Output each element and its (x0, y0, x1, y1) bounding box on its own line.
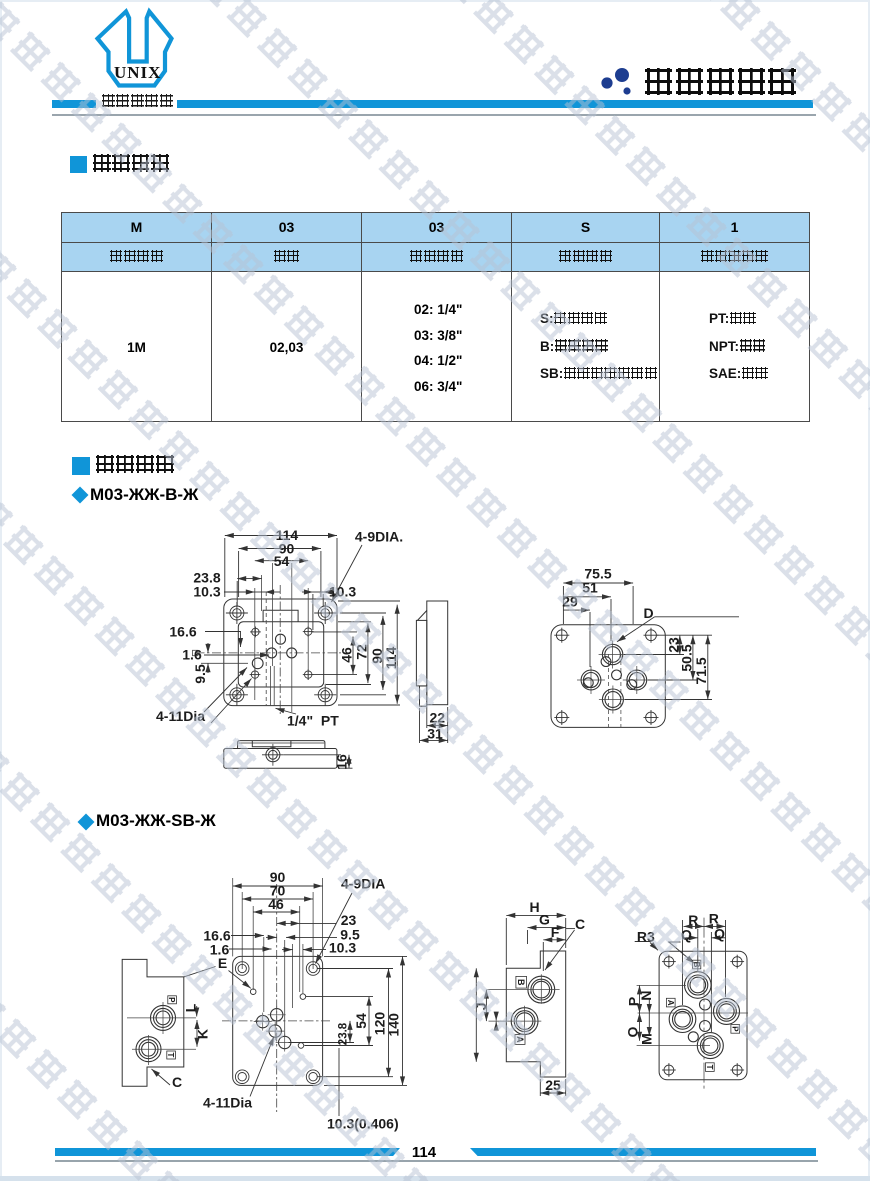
svg-text:25: 25 (545, 1077, 561, 1093)
svg-text:4-11Dia: 4-11Dia (203, 1095, 252, 1111)
svg-text:M: M (639, 1033, 655, 1045)
svg-text:A: A (666, 1000, 675, 1006)
svg-text:23.8: 23.8 (337, 1022, 349, 1045)
svg-text:16: 16 (334, 754, 350, 770)
svg-text:72: 72 (354, 644, 370, 660)
svg-text:50.5: 50.5 (679, 644, 695, 671)
svg-text:E: E (218, 955, 227, 971)
svg-text:114: 114 (383, 646, 399, 669)
svg-text:16.6: 16.6 (169, 624, 196, 640)
svg-text:10.3(0.406): 10.3(0.406) (327, 1116, 399, 1132)
svg-text:H: H (529, 899, 539, 915)
svg-text:54: 54 (274, 553, 290, 569)
svg-text:L: L (183, 1003, 199, 1012)
svg-text:J: J (473, 1003, 489, 1011)
svg-text:10.3: 10.3 (193, 584, 220, 600)
svg-text:46: 46 (268, 896, 284, 912)
svg-text:R: R (709, 911, 719, 927)
svg-text:G: G (539, 912, 550, 928)
svg-text:D: D (643, 605, 653, 621)
svg-text:A: A (515, 1036, 525, 1043)
svg-text:R3: R3 (637, 929, 655, 945)
svg-text:B: B (516, 979, 526, 986)
svg-text:9.5: 9.5 (192, 664, 208, 684)
svg-text:Q: Q (714, 926, 725, 942)
svg-text:1.6: 1.6 (182, 647, 202, 663)
svg-text:71.5: 71.5 (693, 657, 709, 684)
svg-text:P: P (731, 1026, 740, 1032)
svg-text:4-9DIA.: 4-9DIA. (355, 529, 403, 545)
svg-text:46: 46 (338, 647, 354, 663)
svg-text:K: K (195, 1029, 211, 1039)
svg-text:C: C (172, 1074, 182, 1090)
svg-text:P: P (167, 997, 176, 1003)
svg-text:Q: Q (681, 927, 692, 943)
svg-text:29: 29 (562, 594, 578, 610)
svg-text:N: N (638, 990, 654, 1000)
svg-text:1/4" PT: 1/4" PT (287, 713, 339, 729)
svg-text:31: 31 (427, 726, 443, 742)
svg-text:22: 22 (430, 710, 446, 726)
svg-text:T: T (166, 1053, 175, 1058)
svg-text:4-9DIA: 4-9DIA (341, 876, 385, 892)
svg-text:4-11Dia: 4-11Dia (156, 708, 205, 724)
svg-text:F: F (551, 924, 560, 940)
svg-text:51: 51 (582, 580, 598, 596)
svg-text:140: 140 (385, 1013, 401, 1037)
svg-text:B: B (692, 962, 701, 968)
svg-text:T: T (705, 1065, 714, 1070)
svg-text:C: C (575, 916, 585, 932)
svg-text:54: 54 (353, 1013, 369, 1029)
svg-text:10.3: 10.3 (329, 584, 356, 600)
svg-text:10.3: 10.3 (329, 940, 356, 956)
